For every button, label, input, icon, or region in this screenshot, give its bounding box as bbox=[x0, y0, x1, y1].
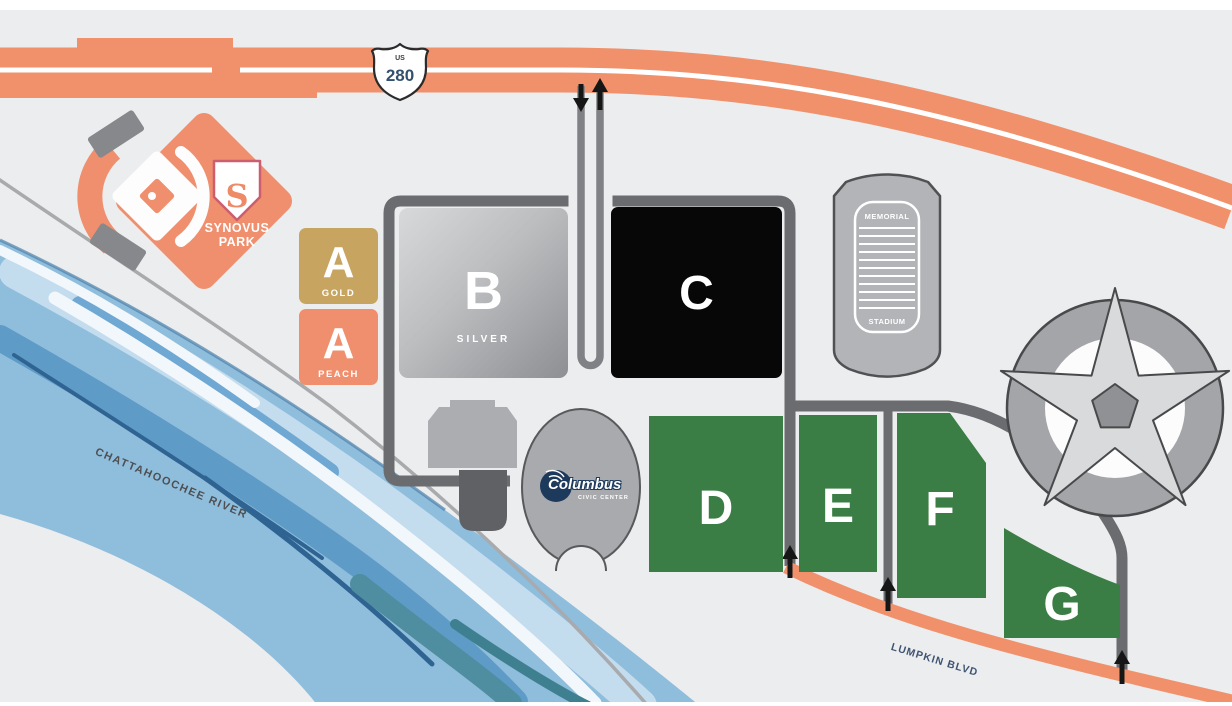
svg-text:S: S bbox=[225, 177, 248, 215]
lot-a-gold: A GOLD bbox=[299, 228, 378, 304]
venue-parking-map: US 280 bbox=[0, 0, 1232, 706]
lot-b: B SILVER bbox=[399, 208, 568, 378]
top-margin bbox=[0, 0, 1232, 10]
entrance-u-road bbox=[581, 86, 600, 366]
lot-e-letter: E bbox=[799, 483, 877, 531]
grandstand-slab bbox=[89, 222, 147, 272]
bottom-margin bbox=[0, 702, 1232, 706]
memorial-stadium-label-bottom: STADIUM bbox=[868, 317, 905, 326]
lot-a-peach-letter: A bbox=[299, 322, 378, 366]
lot-d-letter: D bbox=[649, 485, 783, 533]
lot-b-sublabel: SILVER bbox=[399, 335, 568, 345]
lot-d: D bbox=[649, 416, 783, 572]
driveway-stub bbox=[459, 470, 507, 531]
lot-c-letter: C bbox=[611, 270, 782, 318]
lot-a-peach-sublabel: PEACH bbox=[299, 370, 378, 380]
lot-a-gold-letter: A bbox=[299, 241, 378, 285]
synovus-park-label: SYNOVUS PARK bbox=[192, 221, 282, 249]
shield-number-text: 280 bbox=[386, 66, 414, 85]
shield-us-text: US bbox=[395, 55, 405, 62]
civic-center-logo-subtext: CIVIC CENTER bbox=[578, 495, 638, 501]
auditorium-building bbox=[428, 400, 517, 468]
lot-c: C bbox=[611, 207, 782, 378]
lot-e: E bbox=[799, 415, 877, 572]
lot-b-letter: B bbox=[399, 264, 568, 318]
synovus-park-ballfield: S bbox=[87, 108, 297, 294]
memorial-stadium-label-top: MEMORIAL bbox=[865, 212, 910, 221]
grandstand-slab bbox=[87, 109, 145, 159]
lot-g-letter: G bbox=[1032, 581, 1092, 629]
civic-center-logo-text: Columbus bbox=[548, 477, 638, 492]
star-structure bbox=[1001, 288, 1229, 516]
lot-a-gold-sublabel: GOLD bbox=[299, 289, 378, 299]
lot-a-peach: A PEACH bbox=[299, 309, 378, 385]
lot-f-letter: F bbox=[910, 486, 970, 534]
memorial-stadium: MEMORIAL STADIUM bbox=[834, 175, 940, 377]
